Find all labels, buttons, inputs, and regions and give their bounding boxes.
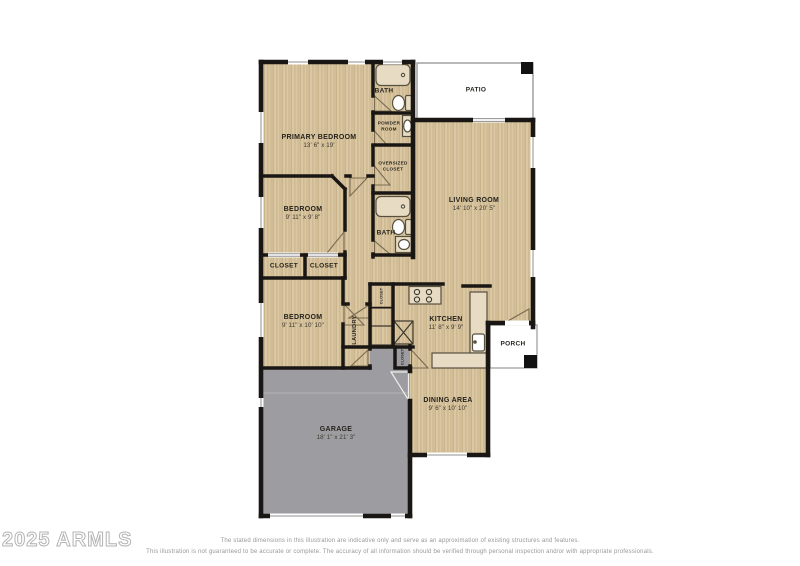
disclaimer-line-2: This illustration is not guaranteed to b… — [0, 549, 800, 555]
room-label-bath-hall: BATH — [377, 230, 396, 239]
room-label-bath-top: BATH — [375, 88, 394, 97]
room-label-garage: GARAGE 18' 1" x 21' 3" — [317, 425, 356, 443]
room-label-laundry: LAUNDRY — [352, 315, 360, 344]
room-label-closet-right: CLOSET — [310, 263, 338, 272]
patio-post — [521, 62, 533, 74]
room-label-bedroom-front: BEDROOM 9' 11" x 10' 10" — [282, 313, 324, 331]
room-label-patio: PATIO — [466, 87, 486, 96]
room-label-bedroom-middle: BEDROOM 9' 11" x 9' 8" — [284, 205, 323, 223]
room-label-oversized-closet: OVERSIZED CLOSET — [378, 160, 407, 171]
room-label-porch: PORCH — [501, 341, 526, 350]
floor-plan-drawing — [0, 0, 800, 566]
room-label-dining-area: DINING AREA 9' 6" x 10' 10" — [423, 396, 472, 414]
porch-post — [524, 355, 537, 368]
room-label-closet-entry-lower: CLOSET — [400, 349, 405, 366]
disclaimer-line-1: The stated dimensions in this illustrati… — [0, 538, 800, 544]
floor-plan-page: PRIMARY BEDROOM 13' 6" x 19' BATH POWDER… — [0, 0, 800, 566]
room-label-powder-room: POWDER ROOM — [378, 120, 400, 131]
room-label-closet-left: CLOSET — [270, 263, 298, 272]
room-label-closet-hall-upper: CLOSET — [379, 288, 384, 305]
room-label-kitchen: KITCHEN 11' 8" x 9' 9" — [429, 315, 464, 333]
room-label-living-room: LIVING ROOM 14' 10" x 20' 5" — [449, 196, 499, 214]
room-label-primary-bedroom: PRIMARY BEDROOM 13' 6" x 19' — [282, 133, 357, 151]
